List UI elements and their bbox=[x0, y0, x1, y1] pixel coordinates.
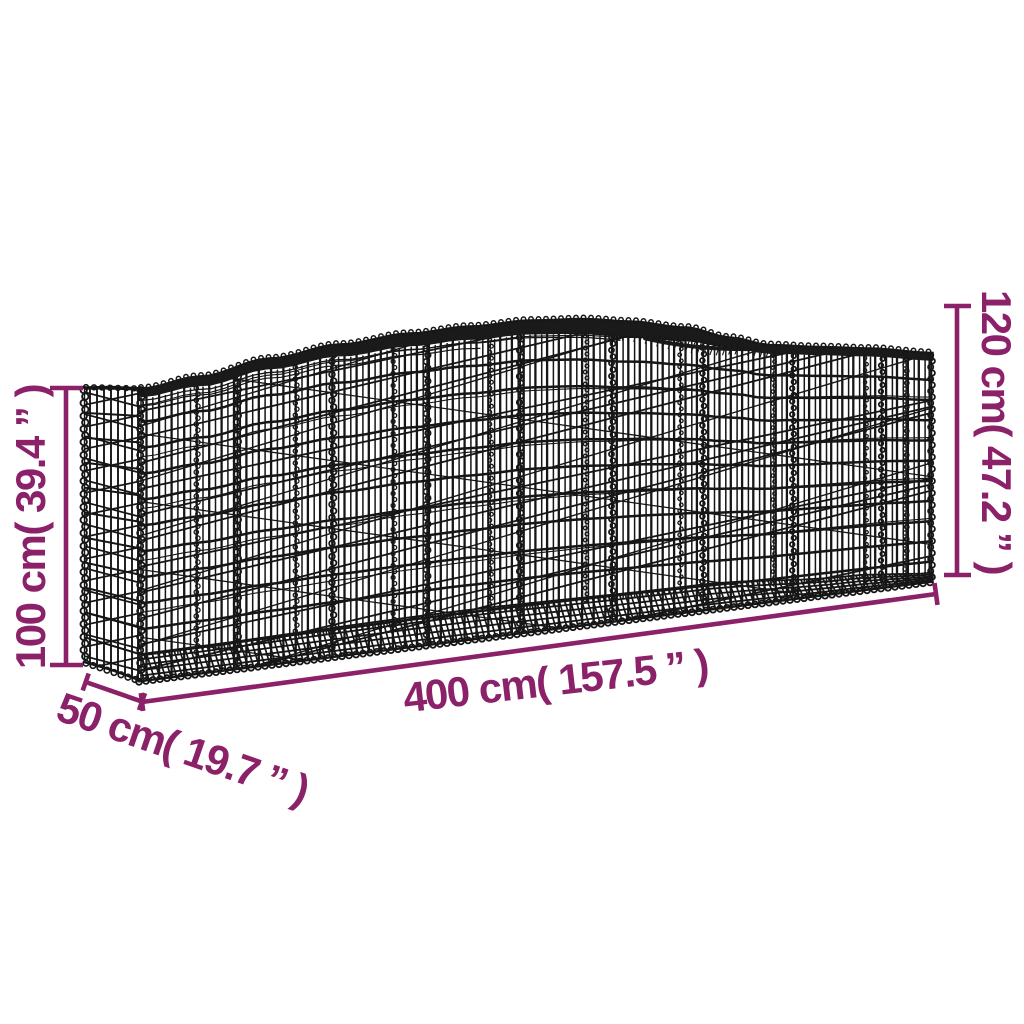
svg-text:120 cm( 47.2 ” ): 120 cm( 47.2 ” ) bbox=[973, 290, 1020, 574]
svg-text:100 cm( 39.4 ” ): 100 cm( 39.4 ” ) bbox=[7, 385, 54, 669]
